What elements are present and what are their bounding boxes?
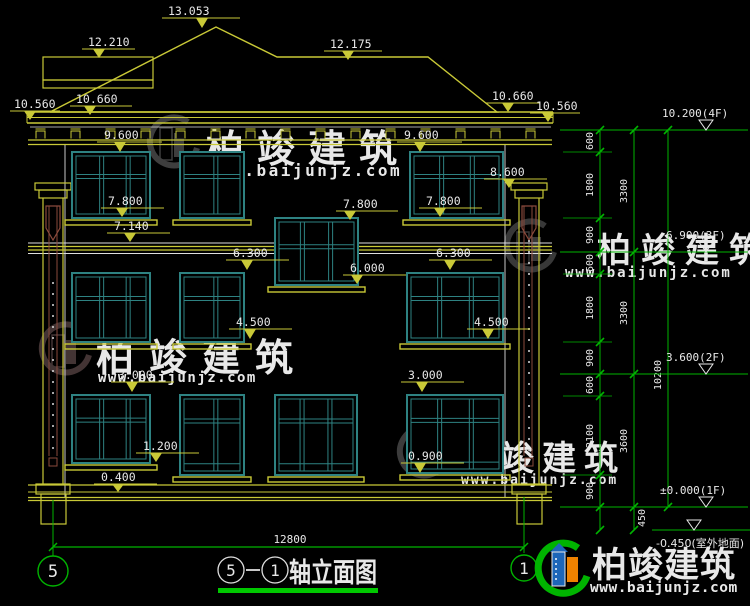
dim-chain-label: 1800 [585,173,596,197]
window [65,273,157,349]
window [65,152,157,225]
svg-text:6.900(3F): 6.900(3F) [666,229,726,242]
svg-text:8.600: 8.600 [490,165,525,179]
window [173,152,251,225]
svg-text:3.600(2F): 3.600(2F) [666,351,726,364]
logo-tower-orange-icon [567,557,578,582]
footer-url: www.baijunjz.com [590,580,738,596]
svg-text:7.140: 7.140 [114,219,149,233]
dim-chain-label: 600 [585,254,596,272]
svg-text:9.600: 9.600 [404,128,439,142]
marker-peak: 13.053 [162,4,240,28]
dim-chain-label: 3300 [619,301,630,325]
svg-text:6.300: 6.300 [436,246,471,260]
marker-stair-win-top: 7.800 [336,197,398,220]
window [173,395,251,482]
svg-text:4.500: 4.500 [474,315,509,329]
drawing-title: 5 1 轴立面图 [218,557,378,593]
svg-text:1.200: 1.200 [143,439,178,453]
svg-text:6.300: 6.300 [233,246,268,260]
svg-text:13.053: 13.053 [168,4,210,18]
svg-text:12.175: 12.175 [330,37,372,51]
window [65,395,157,470]
marker-eave-far-right: 10.560 [530,99,580,122]
dim-chain-label: 900 [585,226,596,244]
svg-text:7.800: 7.800 [108,194,143,208]
marker-ridge-left: 12.210 [82,35,135,58]
window [268,395,364,482]
svg-text:9.600: 9.600 [104,128,139,142]
logo-tower-icon [552,552,565,586]
watermark-tower-icon [52,335,64,367]
svg-text:10.560: 10.560 [14,97,56,111]
window [400,395,510,480]
dim-chain-label: 1800 [585,296,596,320]
svg-text:0.400: 0.400 [101,470,136,484]
svg-text:±0.000(1F): ±0.000(1F) [660,484,726,497]
svg-text:5: 5 [226,561,236,580]
window [173,273,251,349]
svg-text:4.500: 4.500 [236,315,271,329]
dim-chain-label: 3600 [619,429,630,453]
dim-chain-label: 900 [585,482,596,500]
dim-chain-label: 2100 [585,424,596,448]
axis-bubble-right: 1 [519,559,529,578]
svg-text:10.660: 10.660 [492,89,534,103]
dim-chain-label: 3300 [619,179,630,203]
marker-eave-right: 10.660 [486,89,540,112]
marker-base-band: 0.400 [94,470,157,492]
axis-bubble-left: 5 [48,562,58,582]
svg-text:12.210: 12.210 [88,35,130,49]
svg-text:7.800: 7.800 [426,194,461,208]
watermark-swoosh-icon [507,221,554,269]
title-text: 轴立面图 [289,557,377,589]
dim-chain-label: 10200 [653,360,664,390]
window [268,218,365,292]
svg-text:6.000: 6.000 [350,261,385,275]
svg-text:10.660: 10.660 [76,92,118,106]
window [403,152,510,225]
svg-text:10.560: 10.560 [536,99,578,113]
svg-text:12800: 12800 [273,533,306,546]
footer-logo: 柏竣建筑 www.baijunjz.com [538,543,737,596]
dim-chain-label: 600 [585,376,596,394]
svg-text:1: 1 [270,561,280,580]
dim-chain-label: 600 [585,132,596,150]
marker-head1f-right: 3.000 [401,368,464,392]
svg-text:3.000: 3.000 [408,368,443,382]
dim-chain-label: 450 [637,509,648,527]
cad-elevation-drawing: 柏竣建筑www.baijunjz.com柏竣建筑www.baijunjz.com… [0,0,750,606]
window [400,273,510,349]
svg-text:3.000: 3.000 [118,368,153,382]
svg-text:7.800: 7.800 [343,197,378,211]
dim-chain-label: 900 [585,349,596,367]
svg-text:0.900: 0.900 [408,449,443,463]
svg-text:10.200(4F): 10.200(4F) [662,107,728,120]
marker-eave-far-left: 10.560 [10,97,60,120]
marker-band3f: 7.140 [107,219,170,242]
